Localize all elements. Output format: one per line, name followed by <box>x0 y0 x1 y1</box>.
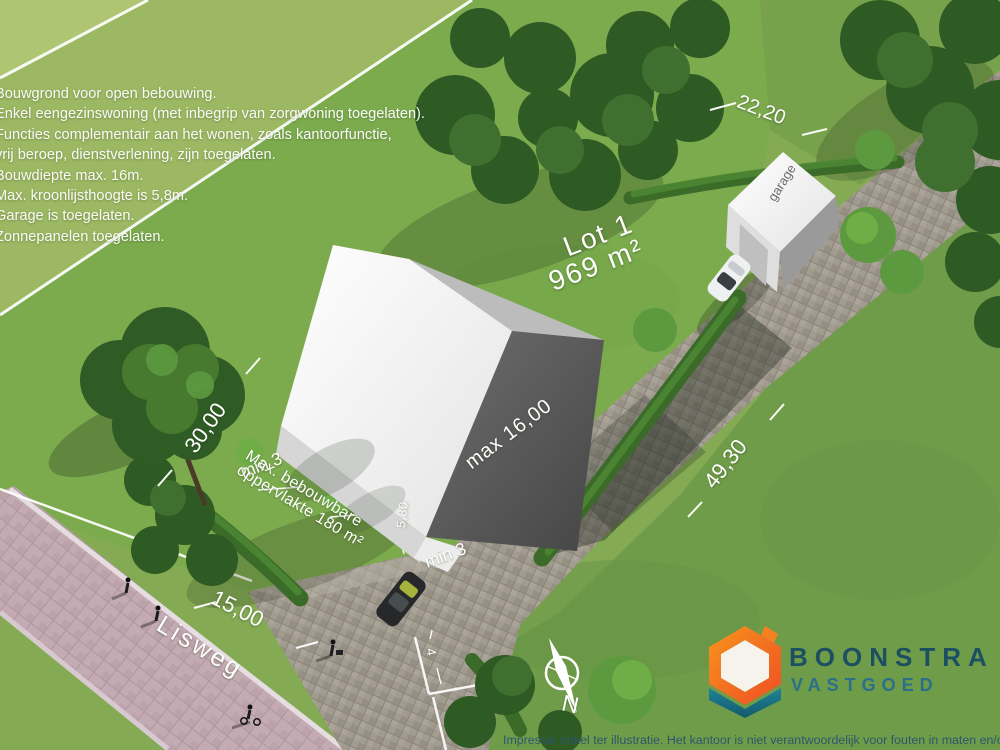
dimension-facade-height: 5,80 <box>395 501 411 529</box>
note-line: Bouwdiepte max. 16m. <box>0 166 425 186</box>
logo-name: BOONSTRA <box>789 642 994 673</box>
note-line: Enkel eengezinswoning (met inbegrip van … <box>0 104 425 124</box>
site-plan-render: Bouwgrond voor open bebouwing. Enkel een… <box>0 0 1000 750</box>
zoning-notes: Bouwgrond voor open bebouwing. Enkel een… <box>0 84 425 247</box>
note-line: Zonnepanelen toegelaten. <box>0 227 425 247</box>
note-line: Bouwgrond voor open bebouwing. <box>0 84 425 104</box>
logo-subtitle: VASTGOED <box>791 675 939 696</box>
note-line: vrij beroep, dienstverlening, zijn toege… <box>0 145 425 165</box>
company-logo: BOONSTRA VASTGOED <box>703 626 1000 722</box>
logo-house-icon <box>703 626 789 722</box>
note-line: Max. kroonlijsthoogte is 5,8m. <box>0 186 425 206</box>
note-line: Functies complementair aan het wonen, zo… <box>0 125 425 145</box>
disclaimer-text: Impressie enkel ter illustratie. Het kan… <box>503 733 1000 747</box>
note-line: Garage is toegelaten. <box>0 206 425 226</box>
